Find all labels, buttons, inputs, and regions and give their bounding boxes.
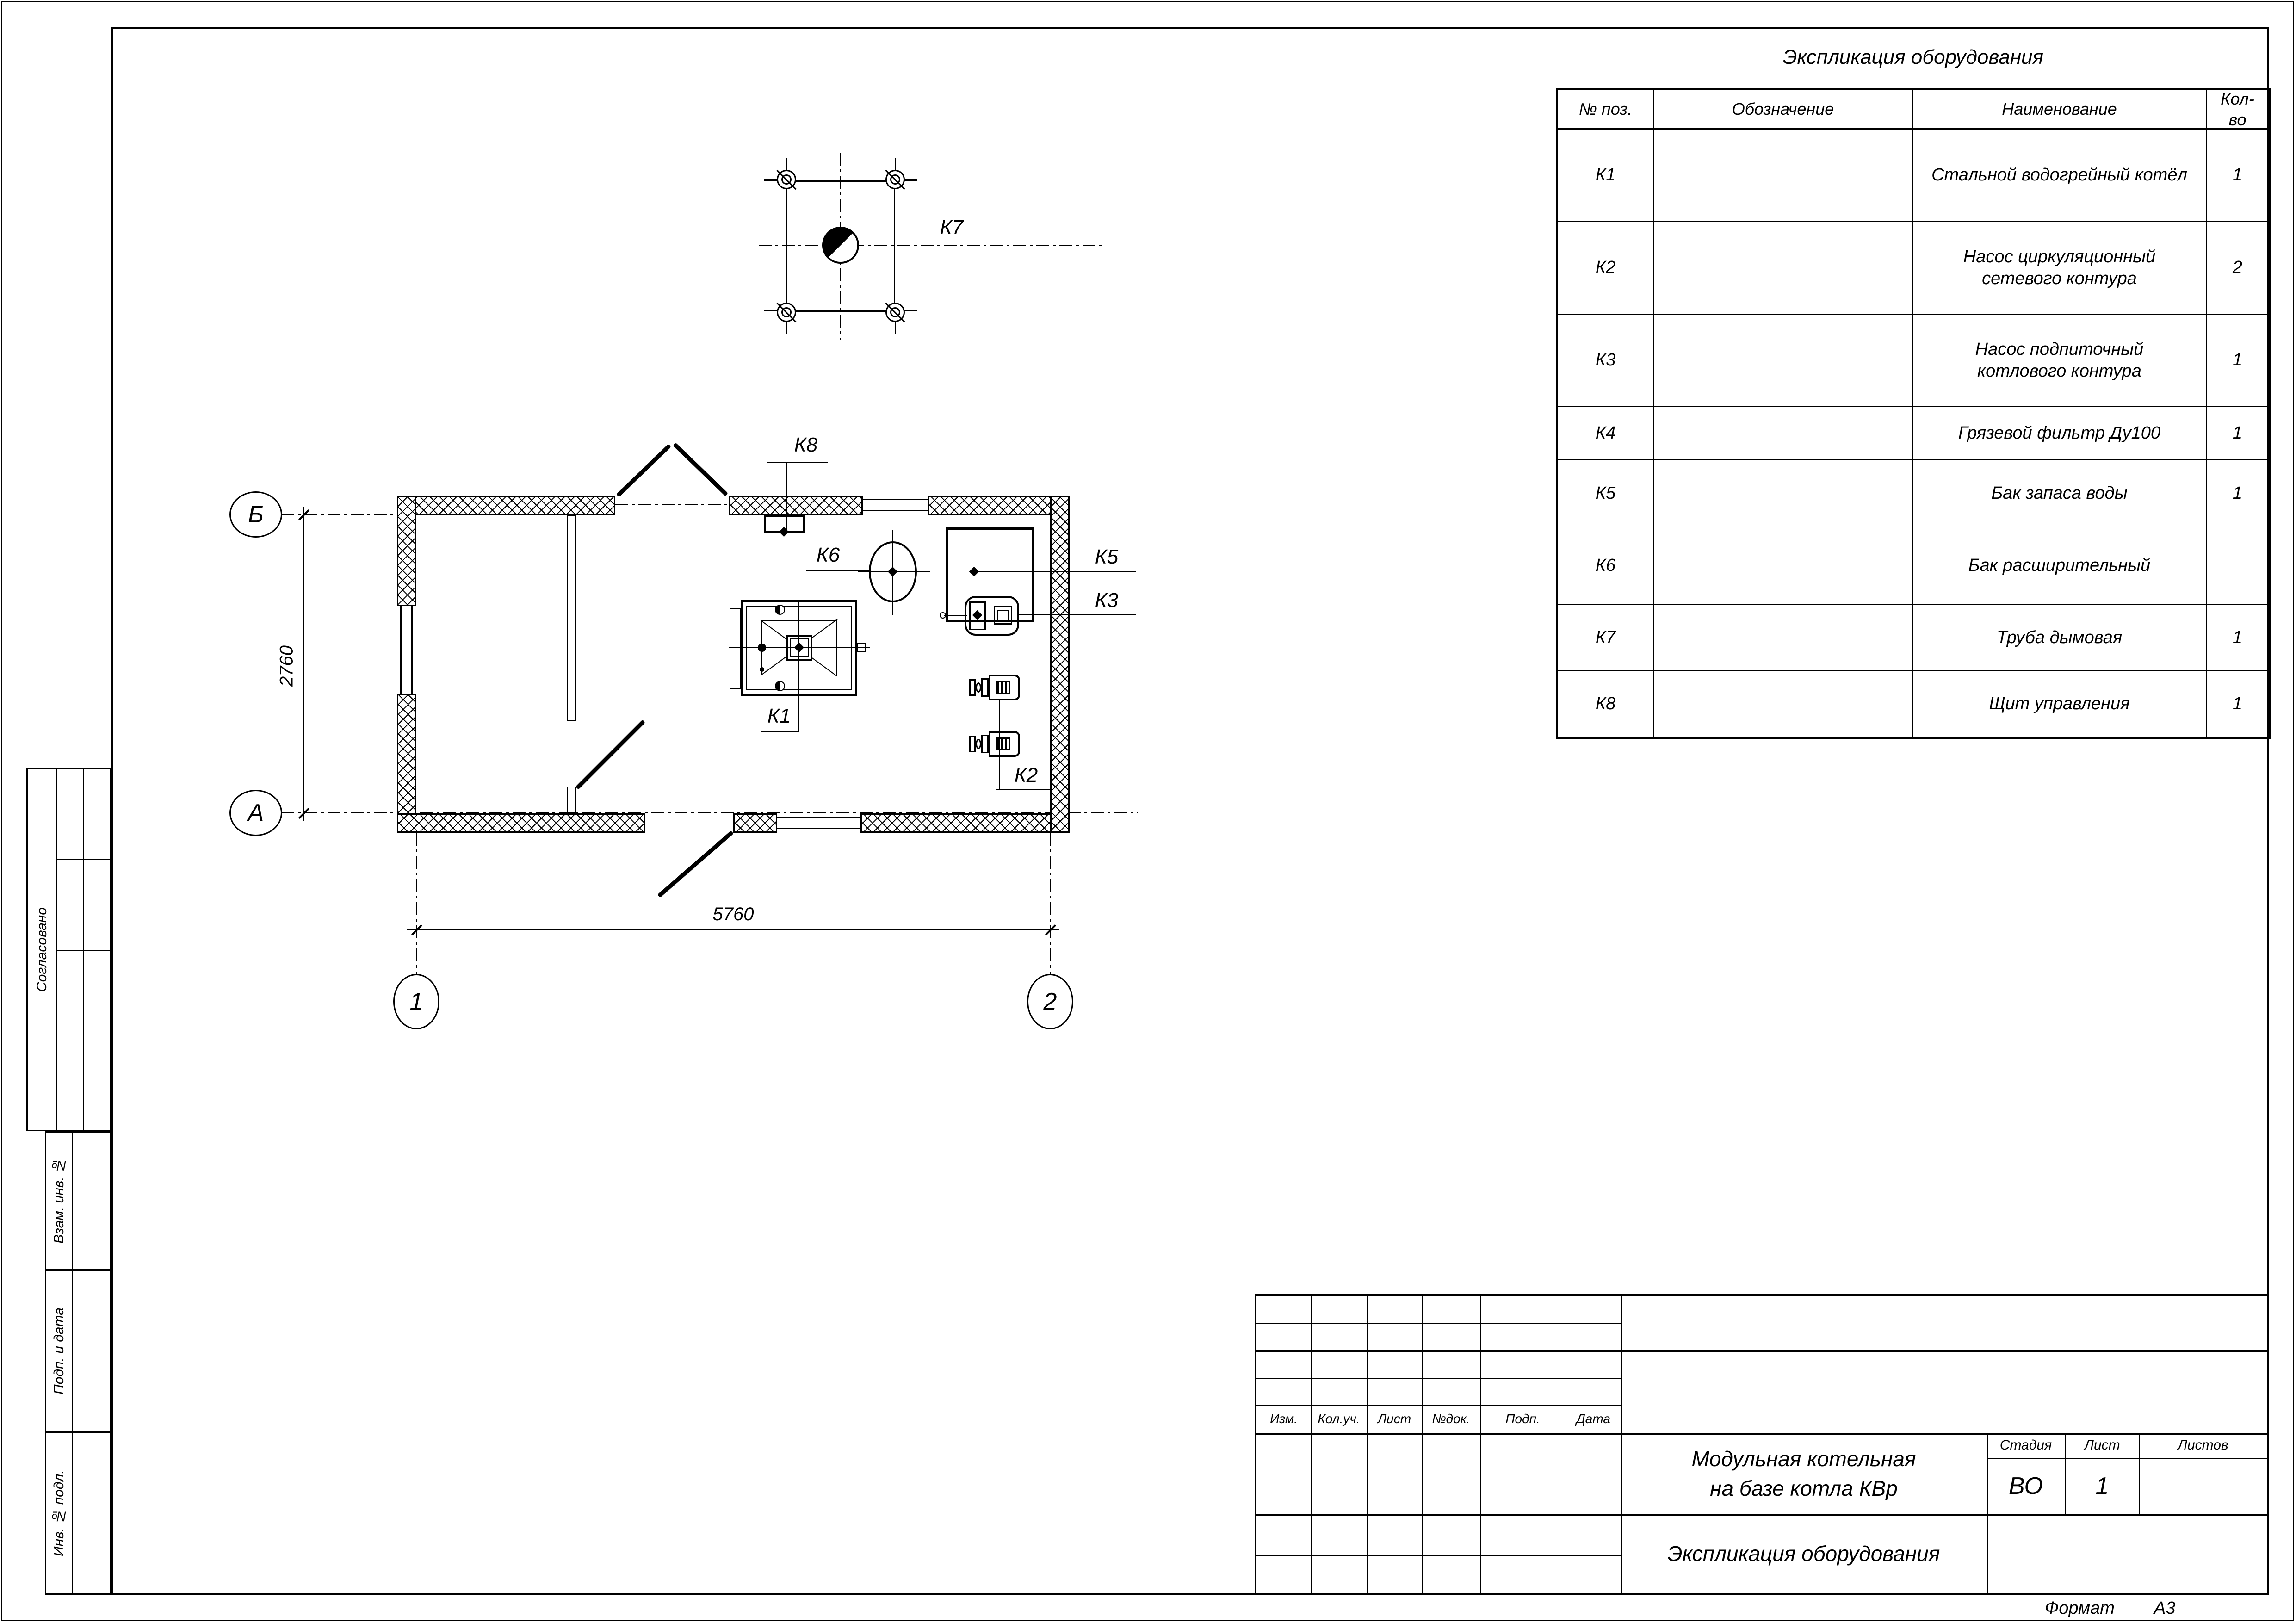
tb-project-title: Модульная котельная на базе котла КВр [1621,1433,1987,1514]
wall-top-left [397,496,615,515]
tb-line [1256,1378,1621,1379]
axis-letter-b: Б [248,501,264,528]
table-cell-qty: 1 [2207,130,2268,222]
stamp-row-line [56,1041,111,1041]
tb-header-podp: Подп. [1480,1405,1566,1433]
side-stamp-agreed-block: Согласовано [26,768,111,1131]
table-cell-designation [1654,407,1913,460]
table-cell-designation [1654,222,1913,315]
wall-right [1050,496,1070,833]
table-cell-name: Труба дымовая [1913,605,2207,671]
drawing-sheet: Согласовано Взам. инв. № Подп. и дата Ин… [0,0,2296,1623]
side-stamp-sign-date-block: Подп. и дата [45,1270,111,1432]
axis-bubble-1: 1 [393,974,439,1029]
pump-flange [976,739,981,749]
pump-suction-line [944,615,967,616]
side-stamp-inv-orig-label: Инв. № подл. [48,1433,70,1593]
dimension-line-vertical [303,507,304,821]
wall-top-right [928,496,1070,515]
pump-flange [969,679,976,696]
table-cell-name: Насос подпиточный котлового контура [1913,315,2207,407]
table-cell-pos: К2 [1558,222,1654,315]
equipment-table-title: Экспликация оборудования [1558,44,2268,70]
label-underline [761,731,799,732]
circulation-pump-k2 [969,731,1020,757]
side-stamp-inv-replace-label: Взам. инв. № [48,1133,70,1269]
stamp-divider [72,1271,73,1431]
tb-sheets-value [2139,1458,2267,1514]
tb-header-izm: Изм. [1256,1405,1311,1433]
leader-line [1019,614,1136,615]
axis-line-1 [416,833,417,974]
title-block: Изм. Кол.уч. Лист №док. Подп. Дата Модул… [1255,1294,2269,1595]
label-k3: К3 [1087,588,1126,613]
table-cell-designation [1654,460,1913,527]
pump-k3-port [940,612,946,619]
tb-header-koluch: Кол.уч. [1311,1405,1367,1433]
chimney-pipe-icon [822,227,859,264]
dimension-line-horizontal [407,929,1059,930]
boiler-k1-burner [730,608,741,689]
tb-sheet-value: 1 [2065,1458,2139,1514]
label-k5: К5 [1087,545,1126,569]
col-header-name: Наименование [1913,90,2207,130]
table-cell-pos: К8 [1558,671,1654,737]
boiler-k1-port [775,681,785,691]
stamp-divider [72,1433,73,1593]
table-cell-name: Насос циркуляционный сетевого контура [1913,222,2207,315]
table-cell-qty: 1 [2207,407,2268,460]
col-header-designation: Обозначение [1654,90,1913,130]
table-cell-pos: К5 [1558,460,1654,527]
tb-line [1367,1296,1368,1593]
side-stamp-inv-replace-block: Взам. инв. № [45,1131,111,1270]
tb-header-list: Лист [1367,1405,1422,1433]
axis-number-1: 1 [410,988,423,1016]
axis-letter-a: А [248,799,264,827]
tb-line [1311,1296,1312,1593]
table-cell-designation [1654,130,1913,222]
pump-motor [996,681,1010,694]
tb-project-title-line2: на базе котла КВр [1710,1474,1898,1503]
pump-flange [976,682,981,693]
side-stamp-inv-orig-block: Инв. № подл. [45,1432,111,1595]
pump-flange [969,736,976,752]
dimension-text-vertical: 2760 [274,622,300,710]
label-k8: К8 [786,433,825,457]
table-cell-qty: 1 [2207,315,2268,407]
pump-k3-motor-inner [997,610,1009,621]
dimension-text-horizontal: 5760 [694,902,773,926]
tb-line [1256,1323,1621,1324]
stamp-divider [72,1133,73,1269]
label-k7: К7 [932,216,971,240]
axis-number-2: 2 [1044,988,1057,1016]
table-cell-name: Бак расширительный [1913,527,2207,605]
format-label: Формат [2045,1598,2115,1618]
col-header-pos: № поз. [1558,90,1654,130]
leader-line [806,570,870,571]
wall-left-upper [397,496,416,606]
pump-cone [981,735,989,753]
boiler-k1-port [775,605,785,615]
window-bottom [777,817,860,829]
tb-line [1422,1296,1423,1593]
format-value: А3 [2154,1598,2175,1618]
equipment-table: № поз. Обозначение Наименование Кол-во К… [1556,88,2271,739]
window-top [863,499,928,511]
tb-line [1566,1296,1566,1593]
tb-line [1256,1555,1621,1556]
wall-bottom-right [860,813,1070,833]
table-cell-designation [1654,527,1913,605]
table-cell-pos: К7 [1558,605,1654,671]
label-underline [767,462,828,463]
wall-bottom-left [397,813,645,833]
table-cell-pos: К3 [1558,315,1654,407]
axis-line-2 [1050,833,1051,974]
tb-line [1256,1350,2267,1352]
leader-line [999,700,1000,789]
table-cell-designation [1654,315,1913,407]
side-stamp-sign-date-label: Подп. и дата [48,1271,70,1431]
axis-bubble-2: 2 [1027,974,1073,1029]
tb-stage-label: Стадия [1987,1433,2065,1458]
format-note: Формат А3 [2045,1598,2175,1618]
tb-line [1256,1474,1621,1474]
axis-bubble-b: Б [229,491,282,538]
wall-bottom-middle [733,813,777,833]
table-cell-qty [2207,527,2268,605]
table-cell-name: Грязевой фильтр Ду100 [1913,407,2207,460]
table-cell-designation [1654,671,1913,737]
leader-line [786,462,787,533]
tb-sheet-label: Лист [2065,1433,2139,1458]
table-cell-pos: К6 [1558,527,1654,605]
partition-wall-stub [567,787,576,813]
tb-header-data: Дата [1566,1405,1621,1433]
label-k6: К6 [809,543,848,567]
table-cell-pos: К4 [1558,407,1654,460]
axis-line-b [281,514,407,515]
table-cell-qty: 2 [2207,222,2268,315]
col-header-qty: Кол-во [2207,90,2268,130]
tb-sheet-title: Экспликация оборудования [1621,1514,1987,1593]
boiler-centerline-v [798,600,799,732]
window-left [400,606,413,694]
label-k1: К1 [761,704,797,728]
table-cell-designation [1654,605,1913,671]
tb-header-ndok: №док. [1422,1405,1480,1433]
wall-left-lower [397,694,416,833]
pump-motor [996,737,1010,750]
pump-cone [981,678,989,697]
table-cell-name: Стальной водогрейный котёл [1913,130,2207,222]
table-cell-name: Бак запаса воды [1913,460,2207,527]
boiler-k1-stub [857,643,866,652]
stamp-row-line [56,950,111,951]
label-k2: К2 [1005,763,1047,787]
table-cell-qty: 1 [2207,605,2268,671]
circulation-pump-k2 [969,675,1020,700]
label-underline [996,789,1050,790]
chimney-centerline-horizontal [759,245,1106,246]
side-stamp-agreed-label: Согласовано [31,769,54,1130]
boiler-k1-valve [760,667,764,672]
wall-top-middle [729,496,863,515]
tb-stage-value: ВО [1987,1458,2065,1514]
axis-line-b [615,504,729,505]
axis-bubble-a: А [229,790,282,836]
stamp-row-line [56,859,111,860]
tb-sheets-label: Листов [2139,1433,2267,1458]
partition-wall [567,515,576,721]
boiler-k1-valve [758,644,766,652]
table-cell-pos: К1 [1558,130,1654,222]
table-cell-qty: 1 [2207,460,2268,527]
table-cell-qty: 1 [2207,671,2268,737]
tb-project-title-line1: Модульная котельная [1692,1444,1916,1474]
tb-line [1480,1296,1481,1593]
leader-line [975,571,1136,572]
table-cell-name: Щит управления [1913,671,2207,737]
